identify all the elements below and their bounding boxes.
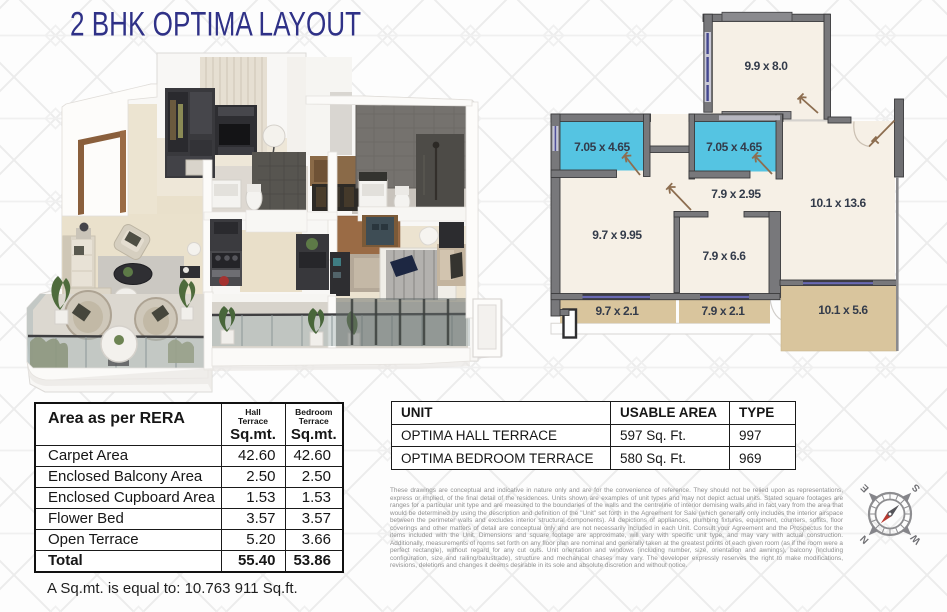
svg-text:S: S [910,481,923,494]
svg-text:10.1 x 5.6: 10.1 x 5.6 [818,303,868,317]
svg-text:7.9 x 2.1: 7.9 x 2.1 [701,304,745,318]
svg-text:7.9 x 6.6: 7.9 x 6.6 [702,249,746,263]
svg-text:9.7 x 9.95: 9.7 x 9.95 [592,228,642,242]
svg-text:7.9 x 2.95: 7.9 x 2.95 [711,187,761,201]
svg-text:10.1 x 13.6: 10.1 x 13.6 [810,196,866,210]
svg-text:9.7 x 2.1: 9.7 x 2.1 [595,304,639,318]
svg-text:7.05 x 4.65: 7.05 x 4.65 [706,140,762,154]
svg-text:E: E [859,481,872,494]
svg-text:7.05 x 4.65: 7.05 x 4.65 [574,140,630,154]
svg-text:9.9 x 8.0: 9.9 x 8.0 [744,59,788,73]
svg-text:W: W [909,531,924,546]
